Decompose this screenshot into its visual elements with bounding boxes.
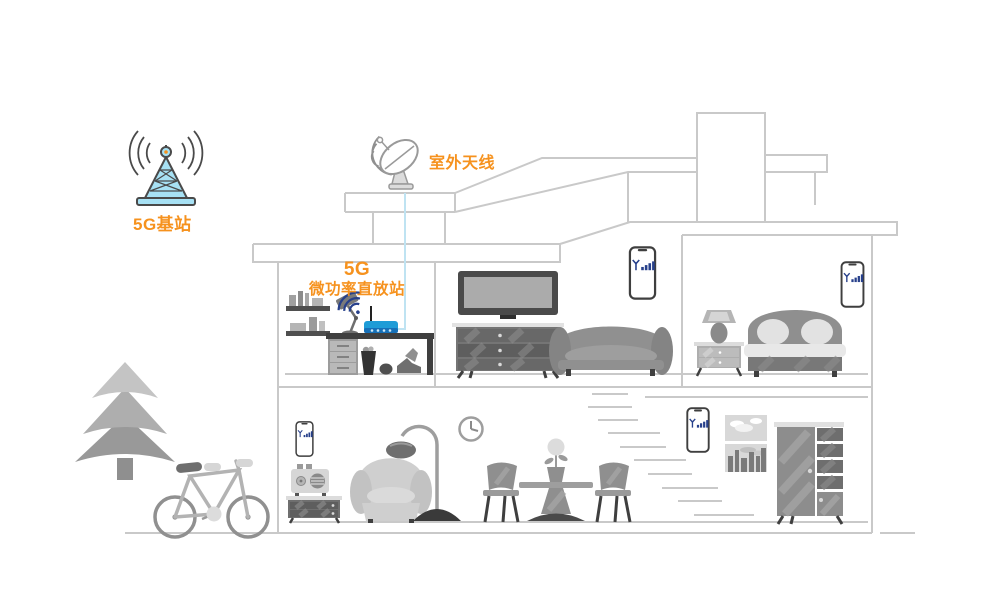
potted-flower [543, 439, 568, 483]
pedestal-table [519, 439, 593, 522]
nightstand [694, 342, 744, 376]
repeater-label-line2: 微功率直放站 [296, 281, 418, 299]
picture-frames [725, 415, 767, 472]
smartphone [687, 408, 708, 452]
bicycle [155, 459, 268, 537]
sofa [549, 327, 673, 377]
base-station-tower-icon [130, 131, 203, 205]
outdoor-antenna-label: 室外天线 [429, 155, 495, 173]
bed [744, 310, 846, 377]
repeater-label-line1: 5G [296, 259, 418, 281]
router-icon [364, 306, 398, 333]
armchair [350, 458, 432, 523]
smartphone [296, 422, 313, 456]
dining-chair [595, 463, 631, 523]
bedside-lamp [702, 310, 736, 344]
wardrobe [774, 422, 844, 524]
tv [458, 271, 558, 319]
dining-chair [483, 463, 519, 523]
repeater-label: 5G 微功率直放站 [296, 259, 418, 299]
wall-clock [460, 418, 483, 441]
sneakers [397, 348, 421, 373]
pine-tree [75, 362, 175, 480]
satellite-dish-icon [366, 133, 424, 189]
trash-can [361, 346, 376, 375]
ball [380, 364, 393, 375]
5g-home-coverage-illustration: 5G基站 室外天线 5G 微功率直放站 [0, 0, 1000, 600]
side-cabinet [286, 496, 342, 523]
smartphone [630, 247, 655, 298]
base-station-label: 5G基站 [133, 215, 192, 235]
smartphone [842, 262, 864, 307]
tv-cabinet [452, 323, 564, 378]
radio [291, 464, 329, 496]
scene-svg [0, 0, 1000, 600]
